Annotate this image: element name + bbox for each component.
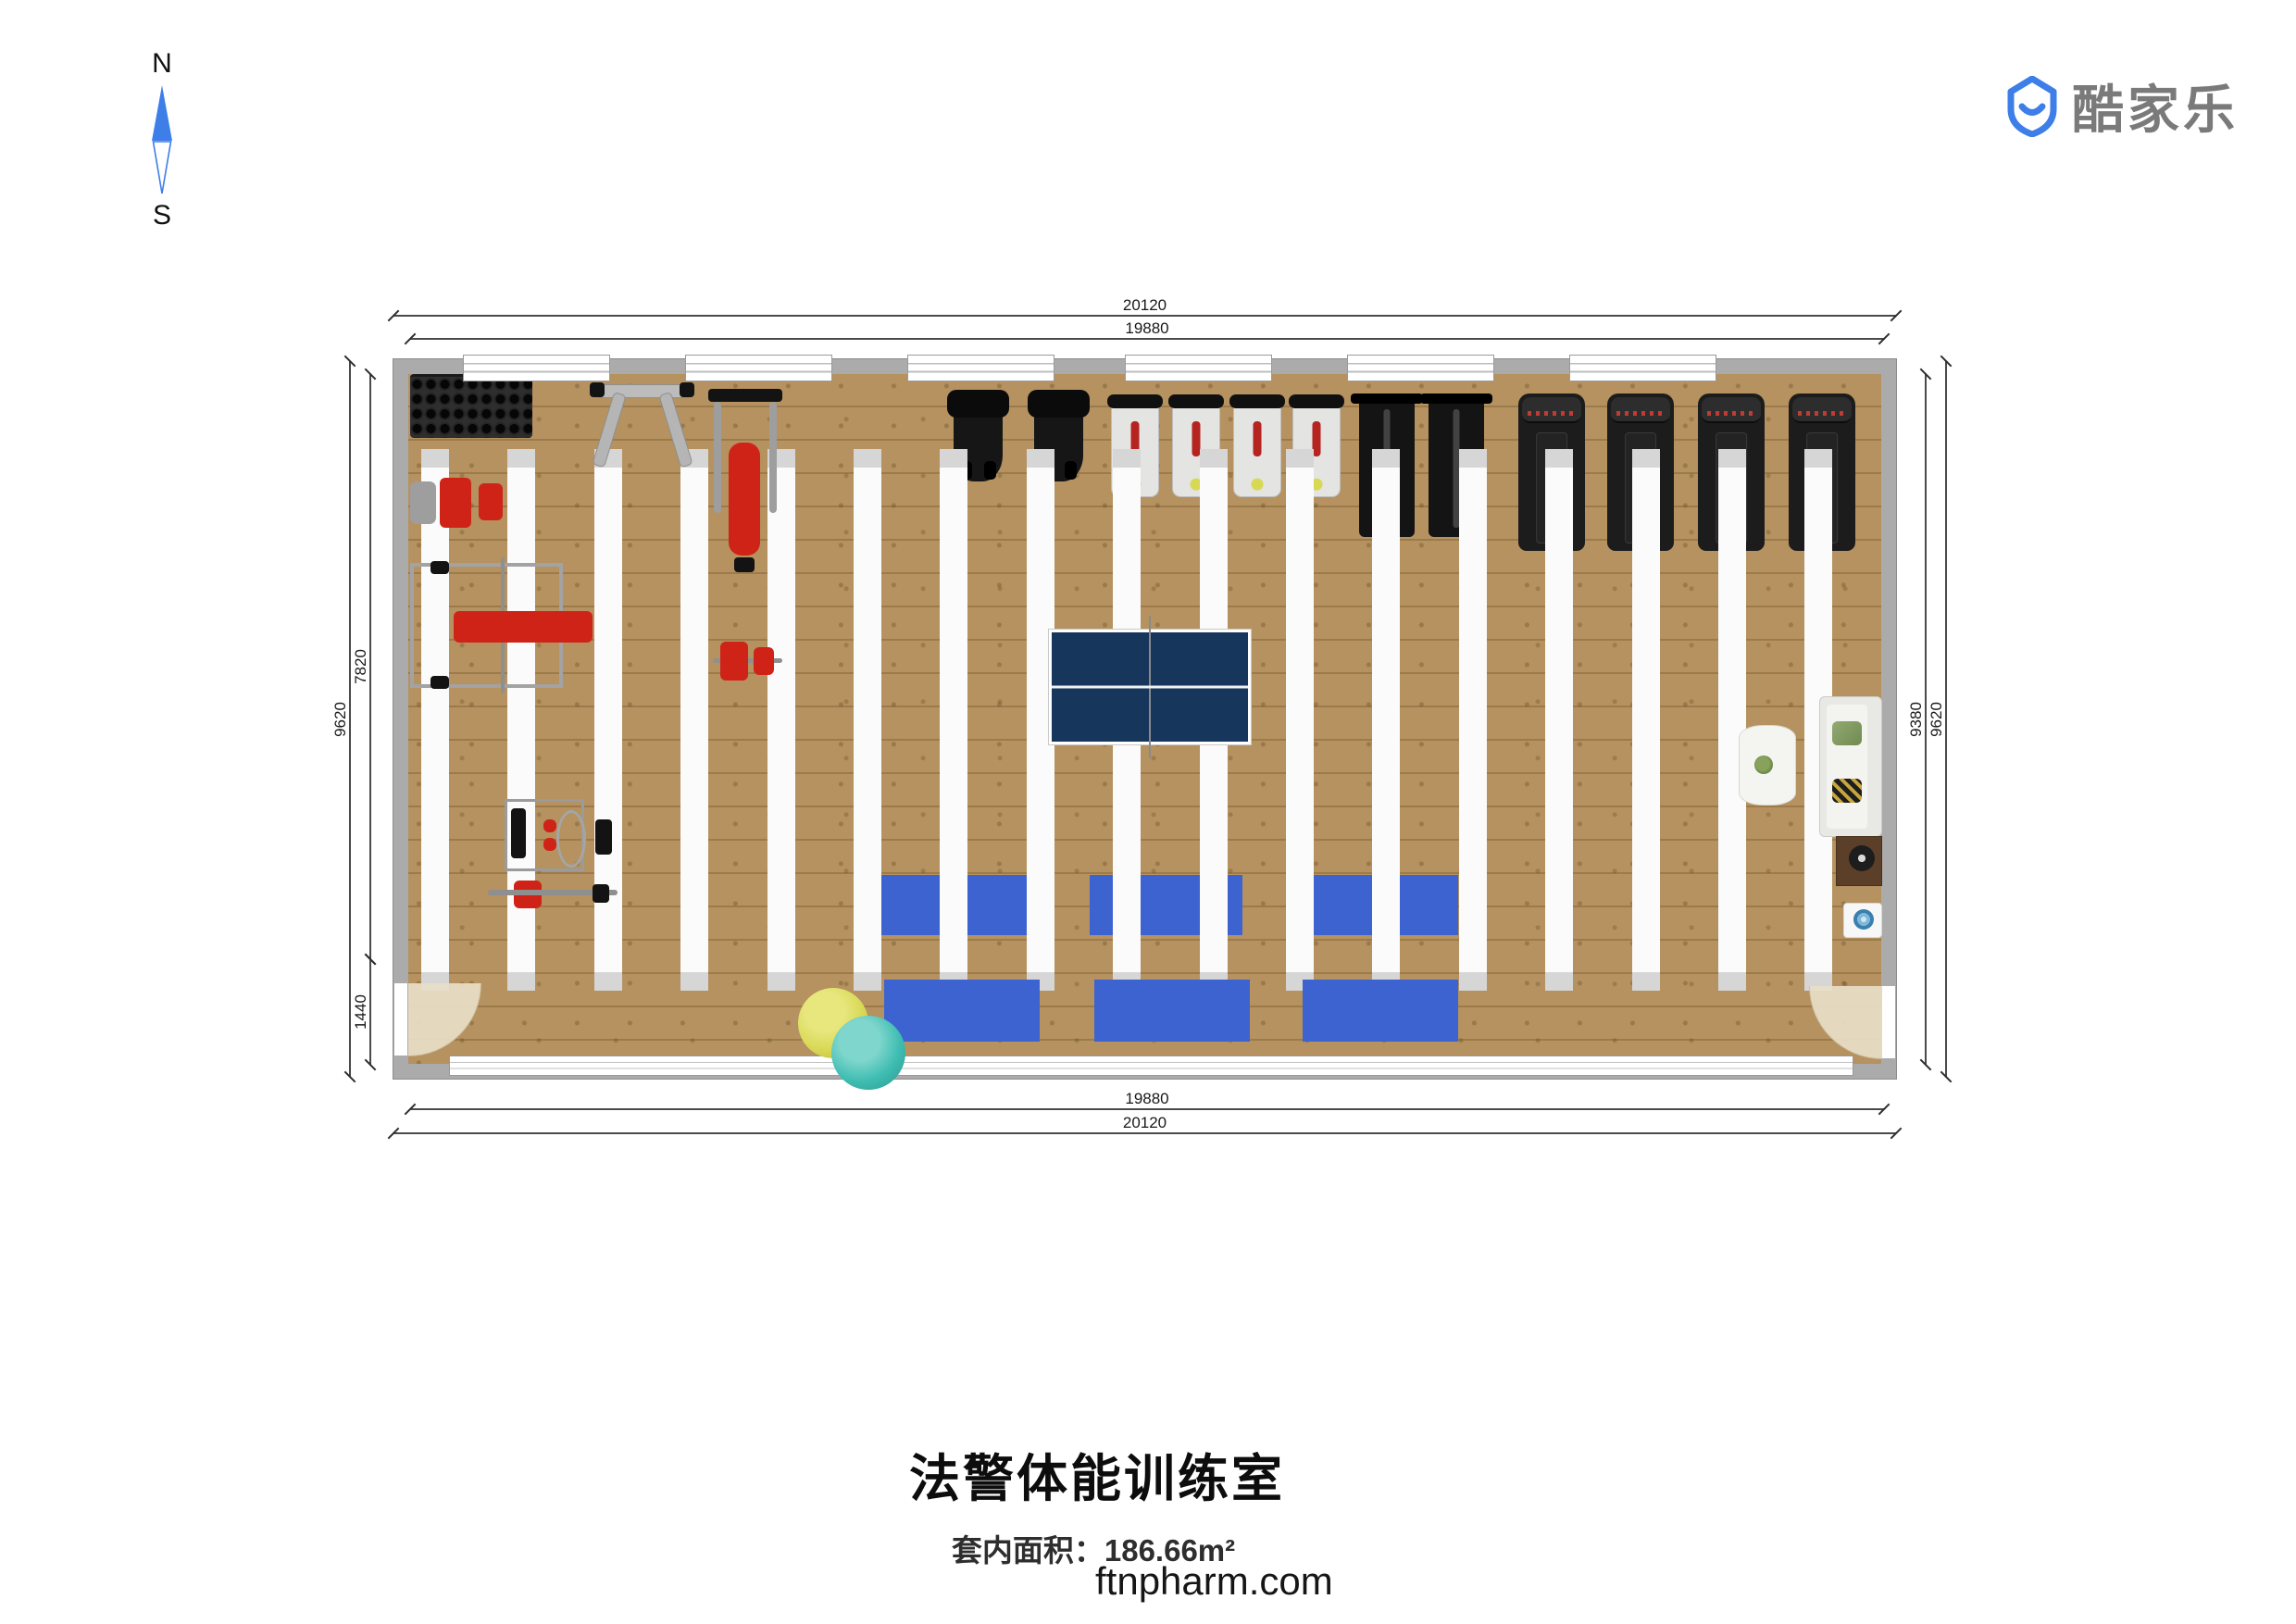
- a-frame-machine-part: [592, 392, 626, 468]
- dimension-right-inner: 9380: [1925, 374, 1927, 1065]
- logo-brand-text: 酷家乐: [2072, 69, 2239, 144]
- smith-machine-part: [714, 402, 721, 513]
- top-window: [1347, 355, 1494, 381]
- area-label: 套内面积：: [952, 1533, 1104, 1568]
- top-window: [463, 355, 610, 381]
- floor-plan: [393, 359, 1896, 1079]
- top-window: [685, 355, 832, 381]
- smith-machine-part: [708, 389, 782, 402]
- multi-gym-station-part: [543, 819, 556, 832]
- multi-gym-station-part: [593, 884, 609, 903]
- a-frame-machine-part: [658, 392, 693, 468]
- ping-pong-table: [1049, 630, 1251, 744]
- dimension-label: 9380: [1907, 702, 1926, 737]
- top-window: [907, 355, 1054, 381]
- top-window: [1125, 355, 1272, 381]
- floor-stripe: [1632, 449, 1660, 991]
- dimension-label: 19880: [1125, 319, 1168, 338]
- floor-stripe: [1545, 449, 1573, 991]
- adjustable-bench-part: [720, 642, 748, 681]
- dimension-top-inner: 19880: [410, 338, 1884, 340]
- compass: N S: [130, 48, 194, 252]
- weight-bench-station-part: [430, 676, 449, 689]
- dimension-left-inner-upper: 7820: [369, 374, 371, 959]
- sofa-part: [1832, 721, 1862, 745]
- dimension-label: 19880: [1125, 1090, 1168, 1108]
- compass-needle-icon: [145, 83, 179, 196]
- a-frame-machine-part: [680, 382, 694, 397]
- multi-gym-station-part: [595, 819, 612, 855]
- kujiale-logo: 酷家乐: [2007, 69, 2239, 144]
- dimension-label: 20120: [1123, 296, 1167, 315]
- floor-stripe: [1286, 449, 1314, 991]
- door-right-opening: [1882, 986, 1895, 1058]
- exercise-mat: [1303, 980, 1458, 1042]
- multi-gym-station-part: [511, 808, 526, 858]
- dimension-left-inner-lower: 1440: [369, 959, 371, 1065]
- dimension-bottom-outer: 20120: [393, 1132, 1896, 1134]
- smith-machine-part: [729, 443, 760, 556]
- dimension-left-outer: 9620: [349, 361, 351, 1077]
- adjustable-bench: [713, 634, 782, 690]
- floor-stripe: [854, 449, 881, 991]
- weight-bench-station-part: [430, 561, 449, 574]
- floor-stripe: [1372, 449, 1400, 991]
- sofa-part: [1832, 779, 1862, 803]
- smith-machine: [708, 389, 782, 579]
- dimension-label: 20120: [1123, 1114, 1167, 1132]
- exercise-ball-teal: [831, 1016, 905, 1090]
- shoulder-press-machine-part: [410, 481, 436, 524]
- shoulder-press-machine: [410, 474, 503, 531]
- water-dispenser: [1843, 903, 1882, 938]
- coffee-table-part: [1754, 756, 1773, 774]
- compass-north-label: N: [130, 48, 194, 80]
- side-table-part: [1849, 845, 1875, 871]
- exercise-mat: [884, 980, 1040, 1042]
- sofa: [1819, 696, 1882, 837]
- dimension-label: 1440: [352, 994, 370, 1030]
- floor-stripe: [1459, 449, 1487, 991]
- dimension-bottom-inner: 19880: [410, 1108, 1884, 1110]
- multi-gym-station-part: [556, 810, 586, 868]
- top-window: [1569, 355, 1716, 381]
- shoulder-press-machine-part: [440, 478, 471, 528]
- multi-gym-station: [505, 792, 618, 912]
- a-frame-machine: [590, 384, 694, 468]
- floor-stripe: [680, 449, 708, 991]
- coffee-table: [1739, 725, 1796, 806]
- shoulder-press-machine-part: [479, 483, 503, 520]
- weight-bench-station-part: [454, 611, 593, 643]
- side-table: [1836, 836, 1882, 886]
- watermark-text: ftnpharm.com: [1095, 1559, 1333, 1604]
- door-left-opening: [394, 983, 407, 1056]
- dimension-right-outer: 9620: [1945, 361, 1947, 1077]
- dumbbell-rack: [410, 374, 532, 438]
- smith-machine-part: [734, 557, 755, 572]
- compass-south-label: S: [130, 200, 194, 231]
- dimension-top-outer: 20120: [393, 315, 1896, 317]
- room-title: 法警体能训练室: [909, 1437, 1285, 1511]
- water-dispenser-part: [1853, 909, 1874, 930]
- a-frame-machine-part: [590, 382, 605, 397]
- a-frame-machine-part: [595, 384, 691, 398]
- spin-bike: [1233, 396, 1281, 497]
- floor-stripe: [940, 449, 967, 991]
- dimension-label: 9620: [1928, 702, 1946, 737]
- weight-bench-station: [410, 563, 563, 688]
- kujiale-shield-icon: [2007, 76, 2057, 137]
- bottom-window: [449, 1056, 1853, 1076]
- multi-gym-station-part: [543, 838, 556, 851]
- dimension-label: 9620: [331, 702, 350, 737]
- smith-machine-part: [769, 402, 777, 513]
- dimension-label: 7820: [352, 649, 370, 684]
- adjustable-bench-part: [754, 647, 774, 675]
- floor-stripe: [1718, 449, 1746, 991]
- exercise-mat: [1094, 980, 1250, 1042]
